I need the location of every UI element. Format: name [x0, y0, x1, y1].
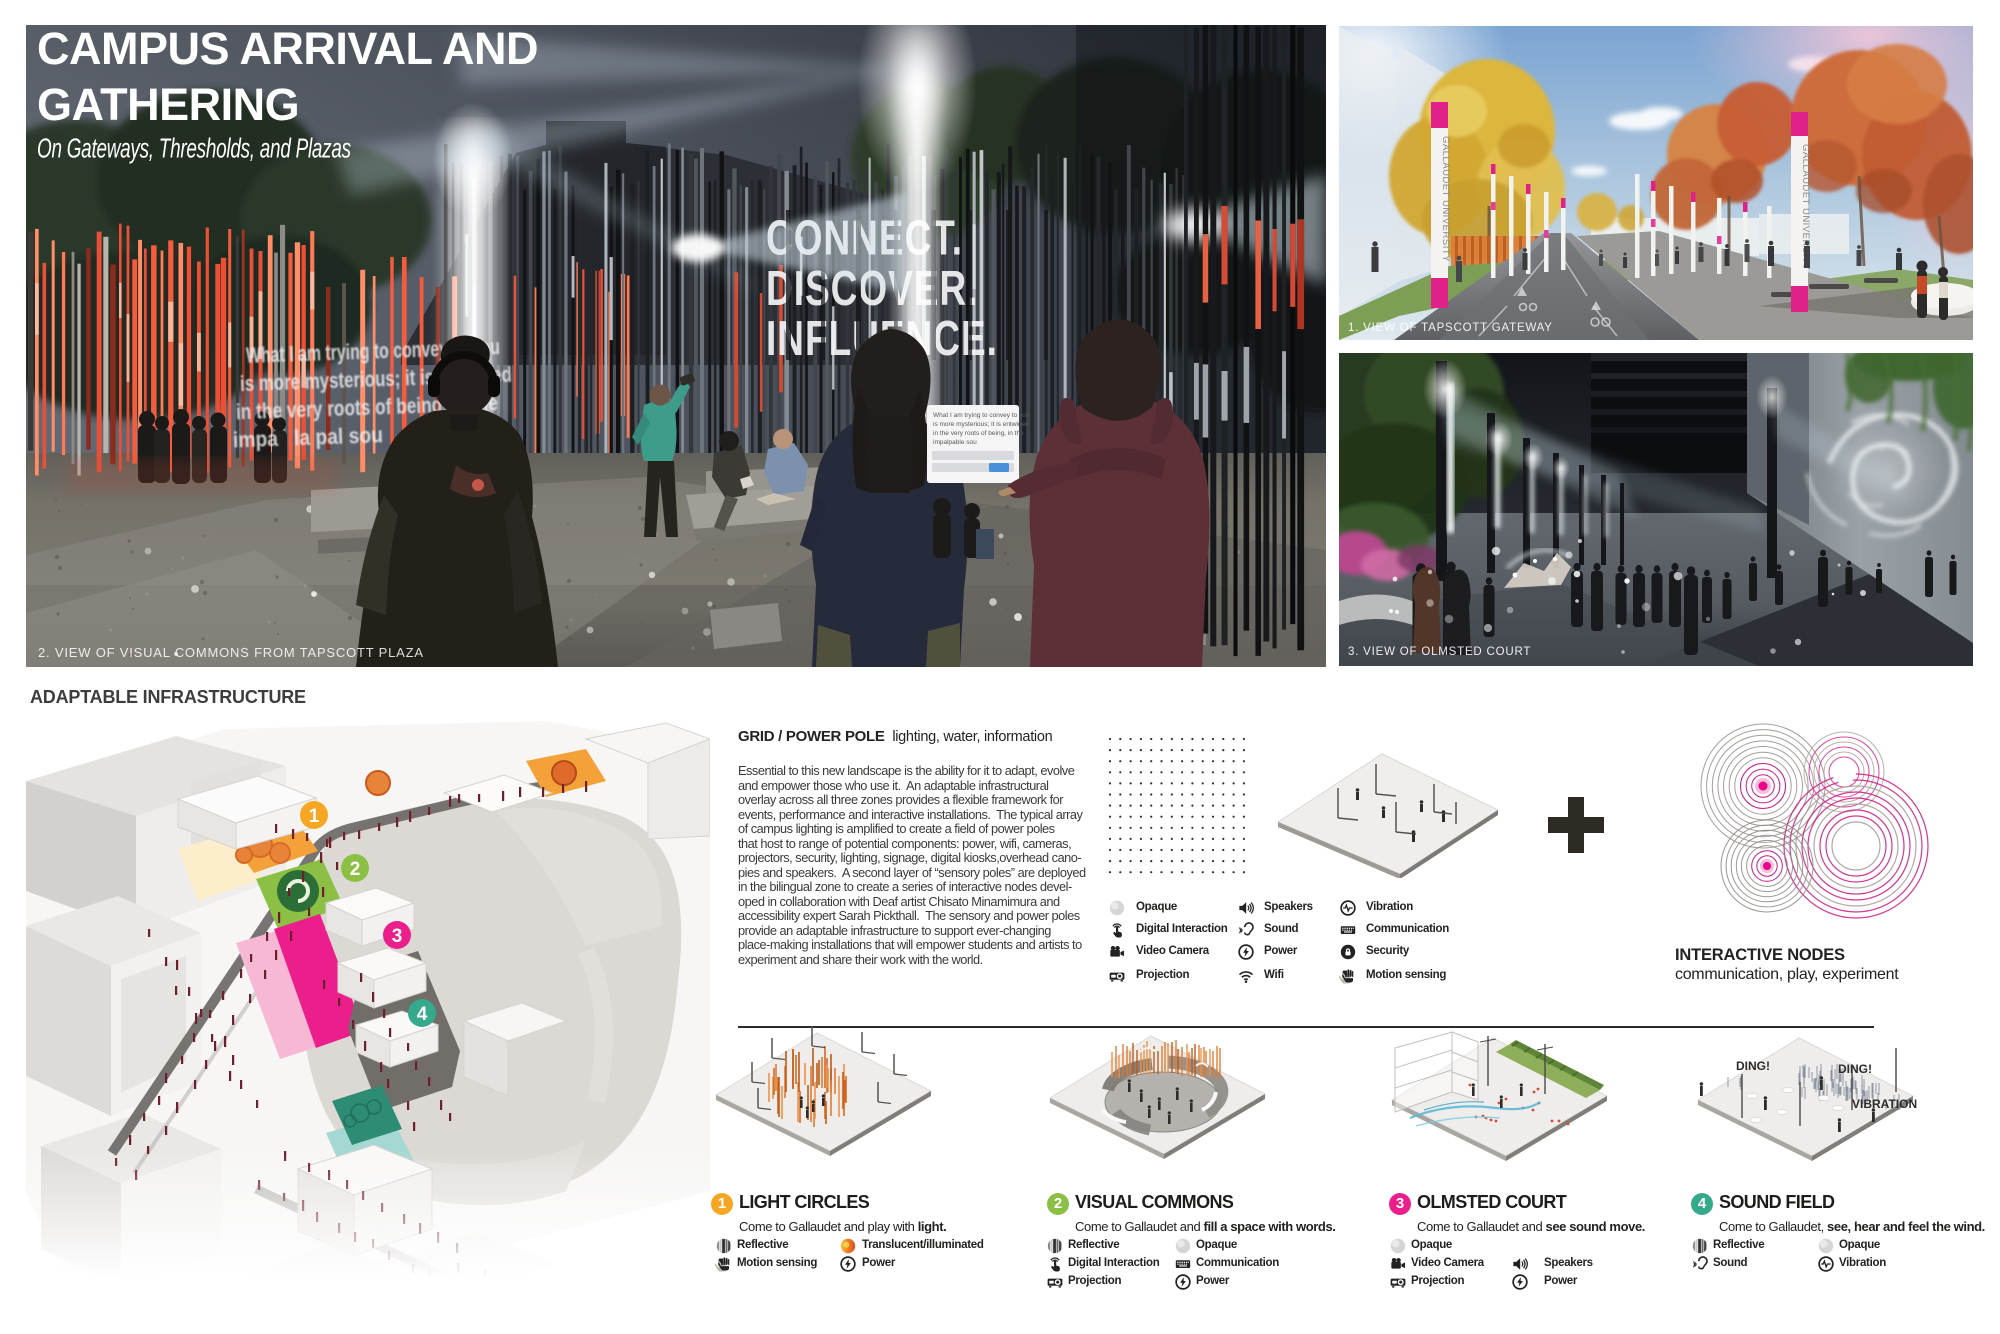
svg-text:VIBRATION: VIBRATION — [1852, 1097, 1917, 1111]
svg-text:GALLAUDET UNIVERSITY: GALLAUDET UNIVERSITY — [1440, 136, 1451, 262]
svg-text:in the very roots of being, in: in the very roots of being, in the — [933, 430, 1024, 437]
svg-text:impa la pal sou: impa la pal sou — [233, 422, 384, 452]
svg-text:1: 1 — [309, 806, 320, 827]
svg-text:DING!: DING! — [1736, 1059, 1770, 1073]
svg-text:1. VIEW OF TAPSCOTT GATEWAY: 1. VIEW OF TAPSCOTT GATEWAY — [1348, 322, 1553, 334]
svg-text:3. VIEW OF OLMSTED COURT: 3. VIEW OF OLMSTED COURT — [1348, 646, 1531, 658]
svg-text:2: 2 — [350, 859, 361, 880]
svg-text:3: 3 — [392, 926, 403, 947]
svg-text:is more mysterious; it is entw: is more mysterious; it is entwined — [933, 421, 1029, 428]
svg-text:impalpable sou: impalpable sou — [933, 439, 977, 446]
svg-text:What I am trying to convey to: What I am trying to convey to you — [933, 412, 1030, 419]
svg-text:DING!: DING! — [1838, 1062, 1872, 1076]
svg-text:2. VIEW OF VISUAL COMMONS FROM: 2. VIEW OF VISUAL COMMONS FROM TAPSCOTT … — [38, 645, 424, 660]
svg-text:4: 4 — [417, 1004, 428, 1025]
